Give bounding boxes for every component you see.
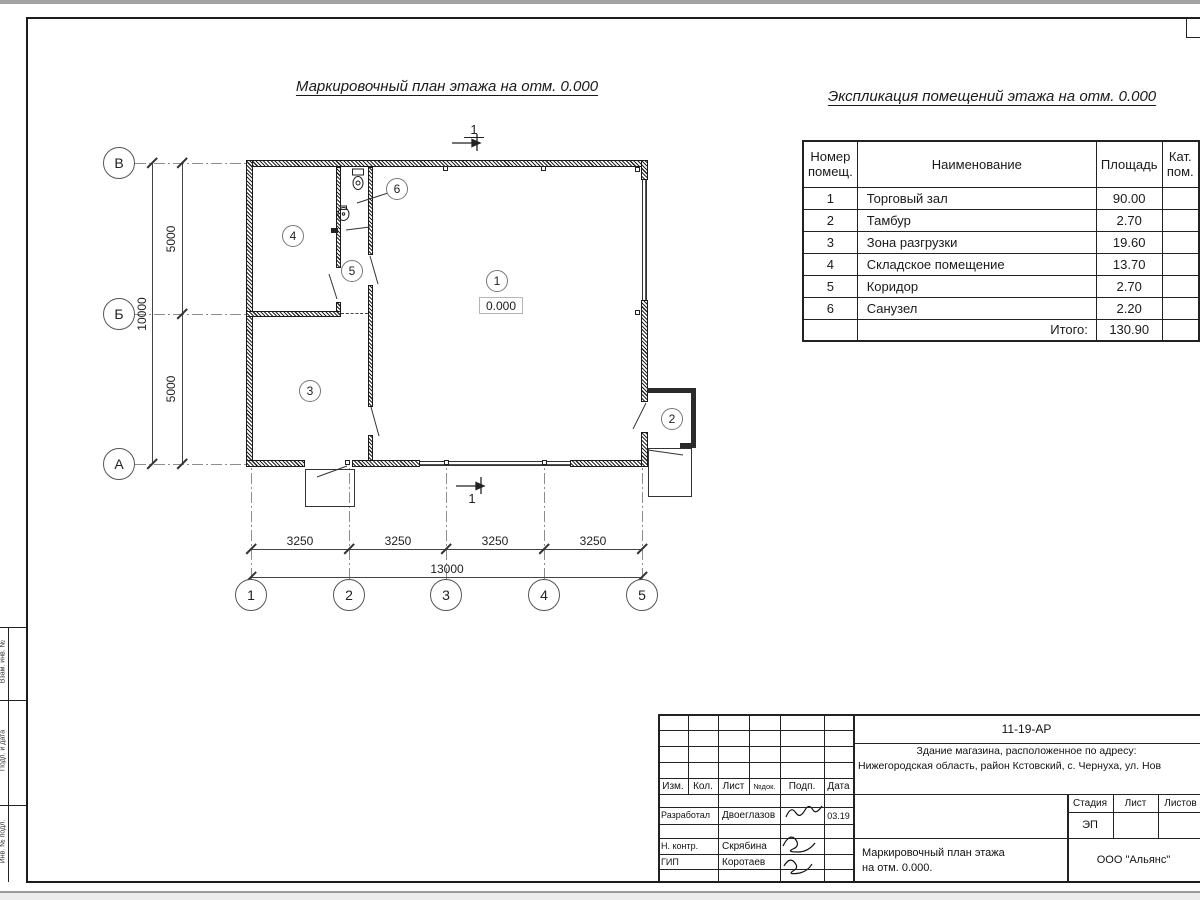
room-label-3: 3: [299, 380, 321, 402]
porch-right: [648, 448, 692, 497]
col-header-cat: Кат. пом.: [1162, 141, 1199, 187]
partition-corridor-1: [368, 167, 373, 255]
tb-stage-label: Стадия: [1067, 794, 1113, 812]
cell-name: Торговый зал: [857, 187, 1096, 209]
tb-project-line1: Здание магазина, расположенное по адресу…: [853, 745, 1200, 757]
tb-name-dev: Двоеглазов: [722, 810, 775, 821]
tb-doc-number: 11-19-АР: [853, 714, 1200, 743]
cell-num: 3: [803, 231, 857, 253]
axis-bubble-4: 4: [528, 579, 560, 611]
tambour-wall-top: [647, 388, 693, 393]
cell-name: Санузел: [857, 297, 1096, 319]
tb-role-dev: Разработал: [661, 810, 710, 820]
frame-top: [26, 17, 1200, 19]
room-label-1: 1: [486, 270, 508, 292]
frame-bottom: [26, 881, 1200, 883]
dim-line-left-outer: [152, 163, 153, 464]
tb-project-line2: Нижегородская область, район Кстовский, …: [858, 760, 1161, 772]
tb-name-ncontr: Скрябина: [722, 841, 767, 852]
tb-listov-label: Листов: [1158, 794, 1200, 812]
explication-title: Экспликация помещений этажа на отм. 0.00…: [792, 88, 1192, 105]
jamb-mark: [542, 460, 547, 465]
table-row: 5 Коридор 2.70: [803, 275, 1199, 297]
door-swing-hall: [371, 407, 379, 436]
cell-cat: [1162, 275, 1199, 297]
jamb-mark: [444, 460, 449, 465]
door-swing-corridor: [370, 256, 378, 284]
jamb-mark: [635, 167, 640, 172]
jamb-mark: [443, 166, 448, 171]
door-swing-storage: [329, 274, 337, 299]
axis-bubble-v: В: [103, 147, 135, 179]
wall-axis-b: [246, 311, 341, 317]
window-right: [642, 180, 647, 300]
wall-right-2: [641, 300, 648, 402]
axis-bubble-5: 5: [626, 579, 658, 611]
cell-name: Тамбур: [857, 209, 1096, 231]
cell-num: 5: [803, 275, 857, 297]
table-row: 4 Складское помещение 13.70: [803, 253, 1199, 275]
table-row: 3 Зона разгрузки 19.60: [803, 231, 1199, 253]
cell-area: 2.70: [1096, 209, 1162, 231]
axis-line-4: [544, 468, 545, 579]
porch-left: [305, 469, 355, 507]
cell-area: 2.70: [1096, 275, 1162, 297]
cell-num: 6: [803, 297, 857, 319]
section-label-bottom: 1: [462, 491, 482, 506]
room-label-5: 5: [341, 260, 363, 282]
cell-area: 2.20: [1096, 297, 1162, 319]
signature-gip: [784, 860, 812, 874]
jamb-mark: [541, 166, 546, 171]
cell-cat: [1162, 297, 1199, 319]
axis-line-5: [642, 468, 643, 579]
section-label-top: 1: [464, 122, 484, 138]
table-row: 1 Торговый зал 90.00: [803, 187, 1199, 209]
side-stamp-label: Инв. № подл.: [0, 812, 7, 872]
side-stamp-divider: [8, 627, 9, 882]
cell-name: Зона разгрузки: [857, 231, 1096, 253]
tb-drawing-title-1: Маркировочный план этажа: [862, 847, 1005, 859]
explication-table: Номер помещ. Наименование Площадь Кат. п…: [802, 140, 1200, 342]
cell-cat: [1162, 231, 1199, 253]
side-stamp-divider: [0, 805, 26, 806]
col-header-area: Площадь: [1096, 141, 1162, 187]
partition-corridor-2: [368, 285, 373, 407]
tb-col-ndok: №док.: [749, 778, 780, 794]
side-stamp-divider: [0, 700, 26, 701]
table-row: 2 Тамбур 2.70: [803, 209, 1199, 231]
partition-corridor-3: [368, 435, 373, 461]
dim-3250-2: 3250: [368, 534, 428, 548]
dim-line-bottom-outer: [251, 577, 642, 578]
axis-bubble-1: 1: [235, 579, 267, 611]
frame-left: [26, 17, 28, 882]
partition-storage: [336, 167, 341, 268]
wall-right-1: [641, 160, 648, 180]
cell-area: 13.70: [1096, 253, 1162, 275]
elevation-mark: 0.000: [479, 297, 523, 314]
jamb-mark: [345, 460, 350, 465]
tb-list-label: Лист: [1113, 794, 1158, 812]
dim-10000: 10000: [135, 279, 149, 349]
cell-cat: [1162, 253, 1199, 275]
top-right-stamp-box: [1186, 17, 1200, 38]
side-stamp-divider: [0, 627, 26, 628]
wall-bottom-1: [246, 460, 305, 467]
dim-5000-top: 5000: [164, 209, 178, 269]
jamb-mark: [635, 310, 640, 315]
page-shadow-bottom: [0, 893, 1200, 900]
axis-bubble-b: Б: [103, 298, 135, 330]
tb-name-gip: Коротаев: [722, 857, 765, 868]
table-row: 6 Санузел 2.20: [803, 297, 1199, 319]
side-stamp-label: Подп. и дата: [0, 721, 7, 781]
plan-title: Маркировочный план этажа на отм. 0.000: [247, 78, 647, 95]
window-bottom: [420, 461, 570, 466]
cell-area: 19.60: [1096, 231, 1162, 253]
tb-role-gip: ГИП: [661, 857, 679, 867]
door-swing-tambour-inner: [633, 403, 646, 429]
cell-num: 4: [803, 253, 857, 275]
room-label-6: 6: [386, 178, 408, 200]
tb-company: ООО "Альянс": [1067, 838, 1200, 882]
axis-bubble-2: 2: [333, 579, 365, 611]
dim-3250-4: 3250: [563, 534, 623, 548]
cell-num: 2: [803, 209, 857, 231]
room-label-2: 2: [661, 408, 683, 430]
leader-panel: [346, 227, 370, 230]
col-header-num: Номер помещ.: [803, 141, 857, 187]
tb-role-ncontr: Н. контр.: [661, 841, 698, 851]
axis-bubble-a: А: [103, 448, 135, 480]
tb-date-dev: 03.19: [824, 807, 853, 824]
page-edge-top: [0, 0, 1200, 4]
cell-cat: [1162, 187, 1199, 209]
signature-ncontr: [783, 837, 815, 852]
cell-area: 90.00: [1096, 187, 1162, 209]
side-stamp-label: Взам. инв. №: [0, 632, 7, 692]
drawing-sheet: { "titles": { "plan": "Маркировочный пла…: [0, 0, 1200, 900]
tb-col-kol: Кол.: [688, 778, 718, 794]
toilet-icon: [353, 169, 364, 190]
cell-name: Коридор: [857, 275, 1096, 297]
dim-5000-bottom: 5000: [164, 359, 178, 419]
dim-13000: 13000: [417, 562, 477, 576]
total-label: Итого:: [857, 319, 1096, 341]
wall-bottom-3: [570, 460, 648, 467]
tb-col-podp: Подп.: [780, 778, 824, 794]
cell-cat: [1162, 209, 1199, 231]
tb-col-list: Лист: [718, 778, 749, 794]
wall-right-3: [641, 432, 648, 467]
col-header-name: Наименование: [857, 141, 1096, 187]
tb-col-izm: Изм.: [658, 778, 688, 794]
cell-num: 1: [803, 187, 857, 209]
opening-dashed-line: [341, 313, 368, 314]
dim-3250-3: 3250: [465, 534, 525, 548]
total-area: 130.90: [1096, 319, 1162, 341]
axis-bubble-3: 3: [430, 579, 462, 611]
cell-name: Складское помещение: [857, 253, 1096, 275]
tb-drawing-title-2: на отм. 0.000.: [862, 862, 932, 874]
axis-line-1: [251, 468, 252, 579]
wall-bottom-2: [352, 460, 420, 467]
tb-col-data: Дата: [824, 778, 853, 794]
tb-stage-value: ЭП: [1067, 812, 1113, 838]
tambour-wall-right: [691, 388, 696, 448]
room-label-4: 4: [282, 225, 304, 247]
table-total-row: Итого: 130.90: [803, 319, 1199, 341]
dim-3250-1: 3250: [270, 534, 330, 548]
